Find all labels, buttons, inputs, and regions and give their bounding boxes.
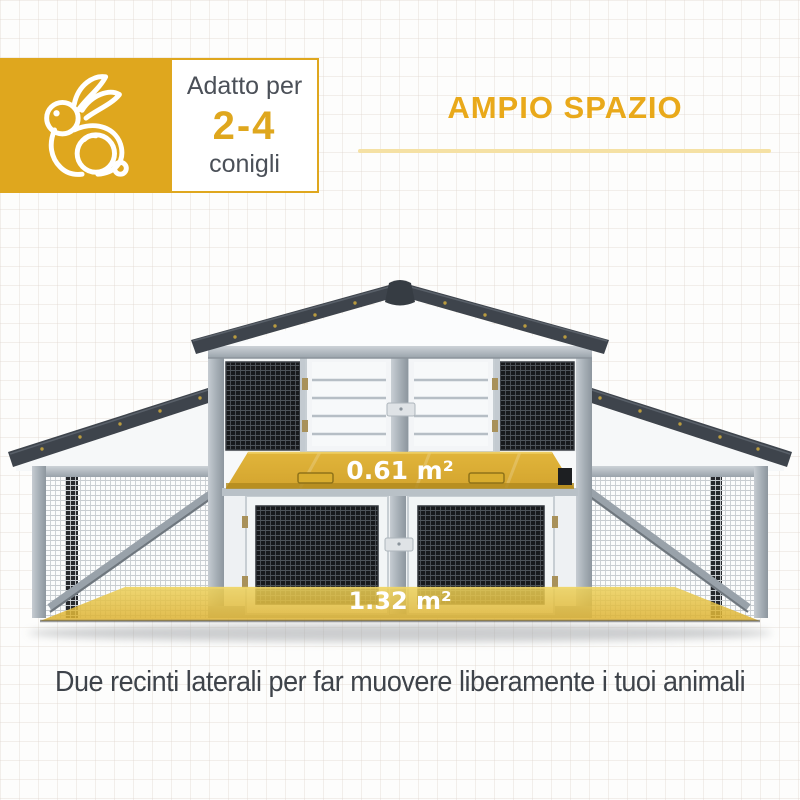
caption-row: Due recinti laterali per far muovere lib…: [0, 666, 800, 699]
capacity-range: 2-4: [213, 103, 277, 149]
caption-text: Due recinti laterali per far muovere lib…: [55, 666, 745, 699]
infographic-page: Adatto per 2-4 conigli AMPIO SPAZIO: [0, 0, 800, 800]
lower-area-label: 1.32 m²: [348, 587, 451, 615]
right-run: [564, 380, 792, 618]
upper-door-latch: [387, 403, 415, 416]
ground-shadow: [28, 624, 772, 642]
rabbit-icon-box: [0, 58, 172, 193]
capacity-badge: Adatto per 2-4 conigli: [0, 58, 319, 193]
title-divider: [358, 149, 771, 153]
section-title: AMPIO SPAZIO: [355, 90, 775, 126]
upper-mesh-right: [500, 362, 574, 450]
left-run: [8, 380, 236, 618]
upper-mesh-left: [226, 362, 300, 450]
upper-door-right: [408, 356, 498, 452]
rabbit-icon: [27, 67, 145, 185]
central-hutch: [191, 280, 609, 618]
capacity-text-box: Adatto per 2-4 conigli: [172, 58, 319, 193]
upper-area-highlight: 0.61 m²: [226, 452, 574, 489]
capacity-animal: conigli: [209, 149, 280, 180]
lower-area-highlight: 1.32 m²: [40, 587, 760, 621]
lid-handle-left: [298, 473, 333, 483]
upper-door-left: [302, 356, 392, 452]
upper-area-label: 0.61 m²: [346, 456, 453, 485]
lid-handle-right: [469, 473, 504, 483]
lower-door-latch: [385, 538, 413, 551]
hutch-illustration: 0.61 m² 1.32 m²: [0, 270, 800, 660]
capacity-prefix: Adatto per: [187, 71, 302, 102]
